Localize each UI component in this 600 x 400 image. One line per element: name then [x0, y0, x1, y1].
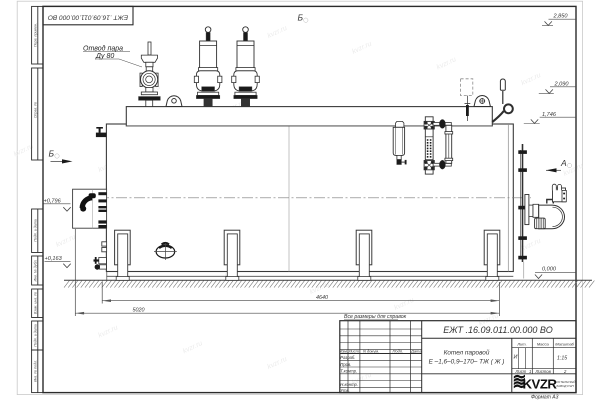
svg-text:ЗАВОД РЭП: ЗАВОД РЭП: [556, 384, 575, 388]
svg-text:5020: 5020: [133, 307, 145, 313]
svg-text:Масштаб: Масштаб: [555, 341, 574, 346]
svg-text:2,850: 2,850: [553, 13, 569, 19]
svg-text:Инв. № дубл.: Инв. № дубл.: [34, 259, 38, 281]
svg-text:4640: 4640: [316, 295, 328, 301]
svg-text:ЕЖТ .16.09.011.00.000 ВО: ЕЖТ .16.09.011.00.000 ВО: [48, 14, 128, 21]
svg-text:Лист: Лист: [515, 369, 527, 374]
svg-text:Утв.: Утв.: [340, 388, 350, 393]
svg-text:Пров.: Пров.: [340, 362, 351, 367]
svg-text:Масса: Масса: [537, 341, 550, 346]
svg-text:N докум.: N докум.: [363, 348, 379, 353]
svg-text:0,000: 0,000: [542, 266, 557, 272]
svg-text:1:15: 1:15: [557, 356, 567, 362]
svg-text:Т.контр.: Т.контр.: [340, 369, 357, 374]
svg-text:Б: Б: [49, 149, 55, 159]
svg-text:Подп. и дата: Подп. и дата: [34, 219, 38, 242]
svg-text:Н.контр.: Н.контр.: [340, 382, 358, 387]
svg-text:И: И: [514, 355, 518, 361]
svg-text:Лит.: Лит.: [516, 341, 526, 346]
svg-text:Дата: Дата: [410, 348, 422, 353]
svg-text:Е –1,6–0,9–170– ТЖ ( Ж ): Е –1,6–0,9–170– ТЖ ( Ж ): [429, 359, 505, 366]
svg-text:Формат А3: Формат А3: [531, 394, 559, 400]
svg-text:1: 1: [529, 369, 531, 374]
svg-text:Взам. инв. №: Взам. инв. №: [34, 292, 38, 314]
svg-text:Подп.: Подп.: [393, 348, 404, 353]
svg-text:Все размеры для справок: Все размеры для справок: [344, 314, 407, 320]
svg-text:+0,163: +0,163: [45, 256, 63, 262]
svg-text:Изм.: Изм.: [340, 348, 349, 353]
svg-text:Листов: Листов: [535, 369, 552, 374]
svg-text:Подп. и дата: Подп. и дата: [34, 324, 38, 347]
svg-text:Б: Б: [298, 12, 304, 22]
svg-text:Перв. примен.: Перв. примен.: [34, 23, 38, 47]
svg-text:Инв. № подл.: Инв. № подл.: [34, 360, 38, 382]
svg-text:Разраб.: Разраб.: [340, 355, 355, 360]
svg-text:ЕЖТ .16.09.011.00.000 ВО: ЕЖТ .16.09.011.00.000 ВО: [443, 325, 552, 335]
svg-text:KVZR: KVZR: [523, 377, 558, 392]
svg-text:Котел паровой: Котел паровой: [444, 349, 490, 357]
svg-text:Справ. №: Справ. №: [34, 102, 38, 118]
svg-text:+0,796: +0,796: [44, 198, 62, 204]
svg-text:Лист: Лист: [348, 348, 360, 353]
svg-text:A: A: [560, 158, 567, 168]
